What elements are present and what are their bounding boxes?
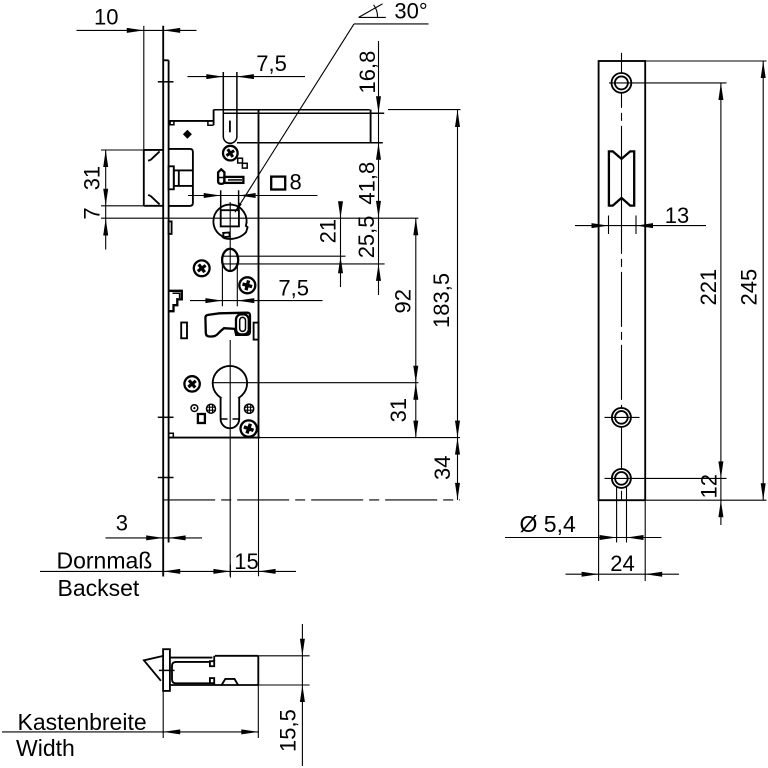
svg-text:3: 3	[116, 511, 128, 536]
svg-text:7,5: 7,5	[278, 276, 309, 301]
svg-text:Kastenbreite: Kastenbreite	[18, 709, 147, 735]
svg-text:7,5: 7,5	[256, 51, 287, 76]
svg-text:Backset: Backset	[58, 575, 140, 601]
svg-text:34: 34	[430, 456, 455, 480]
svg-text:Ø 5,4: Ø 5,4	[520, 511, 576, 537]
svg-text:24: 24	[610, 551, 634, 576]
svg-text:Dornmaß: Dornmaß	[57, 548, 153, 574]
svg-text:15: 15	[234, 549, 258, 574]
svg-text:10: 10	[94, 5, 118, 30]
svg-text:12: 12	[696, 474, 721, 498]
svg-text:7: 7	[79, 207, 104, 219]
svg-text:8: 8	[290, 170, 302, 195]
svg-text:Width: Width	[16, 735, 75, 761]
svg-text:92: 92	[391, 289, 416, 313]
svg-text:30°: 30°	[394, 0, 427, 24]
svg-text:221: 221	[696, 269, 721, 306]
svg-text:31: 31	[79, 166, 104, 190]
svg-text:245: 245	[737, 269, 762, 306]
svg-text:183,5: 183,5	[429, 273, 454, 328]
svg-text:13: 13	[665, 203, 689, 228]
svg-text:41,8: 41,8	[355, 162, 380, 205]
svg-text:31: 31	[386, 398, 411, 422]
svg-text:25,5: 25,5	[354, 215, 379, 258]
svg-text:16,8: 16,8	[355, 51, 380, 94]
svg-text:15,5: 15,5	[276, 709, 301, 752]
svg-text:21: 21	[316, 219, 341, 243]
